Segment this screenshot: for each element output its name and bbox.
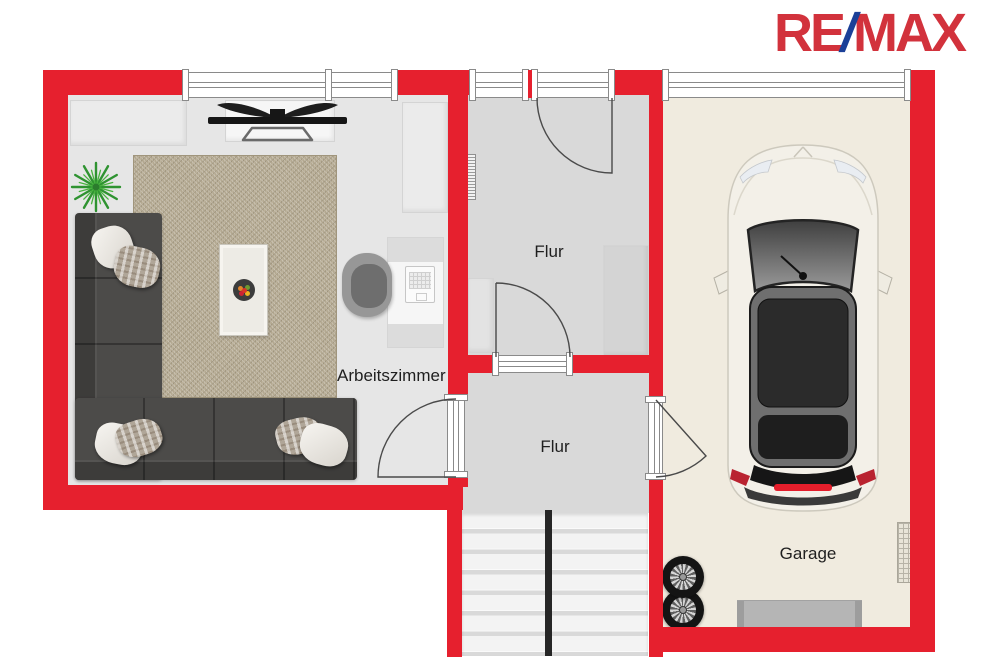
door-cap [444, 394, 468, 401]
door-cap [645, 396, 666, 403]
window-cap [391, 69, 398, 101]
window-cap [182, 69, 189, 101]
laptop-icon [405, 266, 435, 303]
plant-icon [70, 161, 122, 213]
wall [649, 479, 663, 657]
sideboard [70, 100, 187, 146]
hall-cabinet-small [468, 278, 494, 353]
door-cap [444, 471, 468, 478]
stairs-divider [545, 510, 552, 656]
door-cap [645, 473, 666, 480]
door-cap [531, 69, 538, 101]
wall [910, 70, 935, 95]
car-top-view-icon [710, 135, 900, 525]
tire-hub [679, 573, 687, 581]
door-cap [492, 352, 499, 376]
wall [649, 95, 663, 397]
room-label-flur-bottom: Flur [540, 437, 569, 457]
wall [447, 510, 462, 657]
wall [614, 70, 663, 95]
wall [43, 70, 68, 510]
window-cap [469, 69, 476, 101]
laptop-trackpad [416, 293, 427, 301]
garage-door [663, 72, 910, 98]
wardrobe-living [402, 102, 448, 213]
door-cap [662, 69, 669, 101]
wall [663, 627, 910, 652]
wall [448, 477, 468, 487]
door-cap [904, 69, 911, 101]
wall [397, 70, 470, 95]
door-threshold-garage [648, 397, 663, 479]
room-label-flur-top: Flur [534, 242, 563, 262]
window-cap [325, 69, 332, 101]
wall [448, 95, 468, 395]
window-flur [470, 72, 528, 98]
spare-tire [662, 556, 704, 598]
wall [572, 355, 649, 373]
stairs [462, 513, 648, 656]
door-cap [608, 69, 615, 101]
door-cap [566, 352, 573, 376]
laptop-keyboard [409, 272, 431, 289]
window-living [183, 72, 397, 98]
room-label-garage: Garage [780, 544, 837, 564]
door-threshold-flur [493, 355, 572, 373]
office-chair-seat [351, 264, 387, 308]
hall-cabinet-large [603, 245, 649, 357]
room-label-arbeitszimmer: Arbeitszimmer [337, 366, 446, 386]
window-mullion [528, 70, 532, 98]
desk-edge [388, 238, 443, 262]
wall [910, 95, 935, 652]
wall [43, 485, 463, 510]
front-door-threshold [532, 72, 614, 98]
office-chair [342, 253, 392, 317]
remax-logo: RE/MAX [774, 6, 964, 60]
logo-re: RE [774, 3, 843, 63]
tire-hub [679, 606, 687, 614]
logo-max: MAX [853, 3, 964, 63]
wall [468, 355, 493, 373]
tv-icon [200, 97, 355, 147]
floorplan-canvas: RE/MAX [0, 0, 1000, 667]
door-threshold-arbeitszimmer [447, 395, 465, 477]
fruit-bowl-icon [233, 279, 255, 301]
desk-edge [388, 324, 443, 347]
